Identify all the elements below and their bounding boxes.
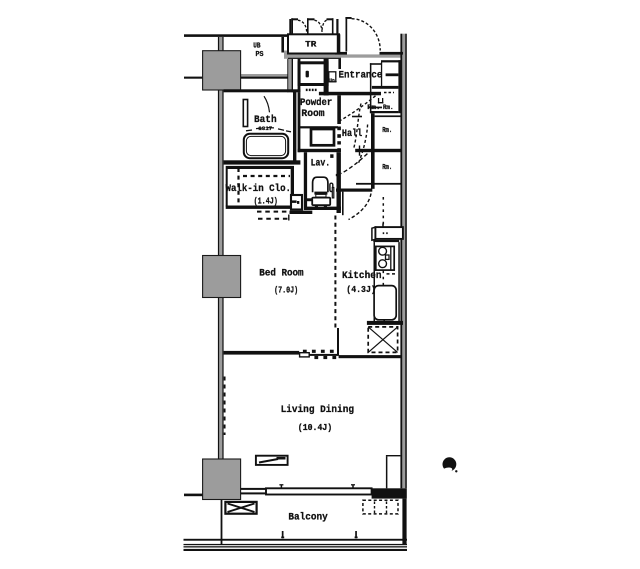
svg-text:Hall: Hall <box>342 128 362 140</box>
svg-text:Entrance: Entrance <box>339 69 383 81</box>
svg-text:Kitchen: Kitchen <box>342 270 382 282</box>
svg-text:PS: PS <box>256 51 264 59</box>
svg-text:TR: TR <box>305 39 317 49</box>
svg-text:Walk-in Clo.: Walk-in Clo. <box>226 183 292 195</box>
svg-text:(1.4J): (1.4J) <box>254 195 278 206</box>
svg-text:Room: Room <box>301 108 324 120</box>
svg-text:Bed Room: Bed Room <box>259 268 303 280</box>
svg-text:Rm.: Rm. <box>382 164 392 172</box>
svg-text:Rm.: Rm. <box>383 104 394 111</box>
svg-text:1317: 1317 <box>258 125 273 132</box>
svg-text:Living Dining: Living Dining <box>281 404 354 416</box>
svg-text:(4.3J): (4.3J) <box>346 284 376 295</box>
svg-text:UB: UB <box>253 42 261 50</box>
svg-text:Un.: Un. <box>330 77 338 84</box>
svg-text:Lav.: Lav. <box>311 158 331 170</box>
svg-text:Balcony: Balcony <box>288 512 328 524</box>
svg-text:(7.0J): (7.0J) <box>274 284 298 295</box>
svg-text:(10.4J): (10.4J) <box>298 422 332 433</box>
svg-text:Rm.: Rm. <box>382 127 392 135</box>
svg-text:Powder: Powder <box>300 97 332 109</box>
